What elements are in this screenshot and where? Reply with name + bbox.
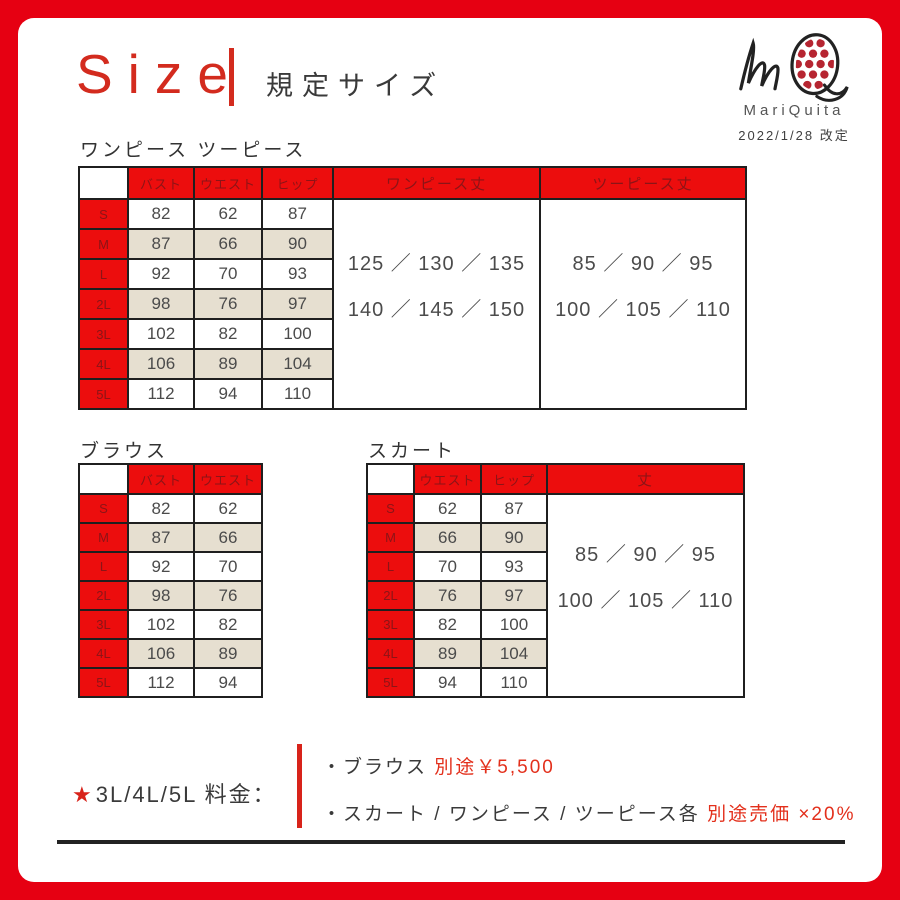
hip-cell: 100 xyxy=(262,319,333,349)
bust-cell: 102 xyxy=(128,319,194,349)
bust-cell: 112 xyxy=(128,379,194,409)
waist-cell: 66 xyxy=(414,523,481,552)
title-divider-bar xyxy=(229,48,234,106)
onepiece-size-table: バスト ウエスト ヒップ ワンピース丈 ツーピース丈 S 82 62 87 12… xyxy=(78,166,747,410)
col-header-waist: ウエスト xyxy=(194,167,262,199)
waist-cell: 76 xyxy=(194,581,262,610)
waist-cell: 66 xyxy=(194,229,262,259)
table-row: 4L 106 89 xyxy=(79,639,262,668)
waist-cell: 62 xyxy=(194,494,262,523)
bust-cell: 92 xyxy=(128,259,194,289)
pricing-item-skirt: ・スカート / ワンピース / ツーピース各 別途売価 ×20% xyxy=(322,799,855,826)
pricing-item-highlight: 別途売価 ×20% xyxy=(707,804,855,825)
section-label-onepiece: ワンピース ツーピース xyxy=(80,135,306,162)
bust-cell: 87 xyxy=(128,229,194,259)
onepiece-length-cell: 125 ／ 130 ／ 135 140 ／ 145 ／ 150 xyxy=(333,199,540,409)
section-label-skirt: スカート xyxy=(368,436,456,463)
pricing-label-text: 3L/4L/5L 料金： xyxy=(96,782,277,807)
pricing-divider-bar xyxy=(297,744,302,828)
col-header-skirt-length: 丈 xyxy=(547,464,744,494)
waist-cell: 94 xyxy=(414,668,481,697)
table-row: 2L 98 76 xyxy=(79,581,262,610)
blouse-size-table: バスト ウエスト S 82 62 M 87 66 L 92 70 2L 98 7… xyxy=(78,463,263,698)
waist-cell: 62 xyxy=(194,199,262,229)
size-cell: 3L xyxy=(367,610,414,639)
corner-cell xyxy=(79,464,128,494)
waist-cell: 82 xyxy=(414,610,481,639)
size-cell: 5L xyxy=(79,668,128,697)
hip-cell: 104 xyxy=(481,639,547,668)
col-header-hip: ヒップ xyxy=(481,464,547,494)
hip-cell: 110 xyxy=(481,668,547,697)
logo-letter-m xyxy=(741,43,778,89)
length-values: 85 ／ 90 ／ 95 xyxy=(541,247,745,276)
pricing-item-highlight: 別途￥5,500 xyxy=(434,757,555,778)
length-values: 125 ／ 130 ／ 135 xyxy=(334,247,539,276)
section-label-blouse: ブラウス xyxy=(80,436,168,463)
page-title-ja: 規定サイズ xyxy=(266,64,445,103)
size-cell: 3L xyxy=(79,319,128,349)
waist-cell: 82 xyxy=(194,319,262,349)
waist-cell: 94 xyxy=(194,379,262,409)
revision-date: 2022/1/28 改定 xyxy=(718,125,870,144)
hip-cell: 93 xyxy=(481,552,547,581)
bust-cell: 112 xyxy=(128,668,194,697)
table-row: M 87 66 xyxy=(79,523,262,552)
bottom-divider-line xyxy=(57,840,845,844)
table-row: S 82 62 87 125 ／ 130 ／ 135 140 ／ 145 ／ 1… xyxy=(79,199,746,229)
size-cell: 5L xyxy=(79,379,128,409)
size-cell: 3L xyxy=(79,610,128,639)
col-header-hip: ヒップ xyxy=(262,167,333,199)
size-cell: 2L xyxy=(367,581,414,610)
waist-cell: 89 xyxy=(194,639,262,668)
size-cell: M xyxy=(79,523,128,552)
size-cell: L xyxy=(79,259,128,289)
bust-cell: 98 xyxy=(128,581,194,610)
size-cell: S xyxy=(79,199,128,229)
col-header-waist: ウエスト xyxy=(414,464,481,494)
hip-cell: 90 xyxy=(481,523,547,552)
size-cell: S xyxy=(79,494,128,523)
waist-cell: 94 xyxy=(194,668,262,697)
table-row: L 92 70 xyxy=(79,552,262,581)
hip-cell: 97 xyxy=(262,289,333,319)
bust-cell: 106 xyxy=(128,349,194,379)
size-cell: L xyxy=(79,552,128,581)
corner-cell xyxy=(367,464,414,494)
col-header-bust: バスト xyxy=(128,167,194,199)
bust-cell: 98 xyxy=(128,289,194,319)
waist-cell: 66 xyxy=(194,523,262,552)
pricing-item-blouse: ・ブラウス 別途￥5,500 xyxy=(322,752,555,779)
star-icon: ★ xyxy=(72,782,94,807)
brand-name: MariQuita xyxy=(718,102,870,119)
length-values: 85 ／ 90 ／ 95 xyxy=(548,538,743,567)
twopiece-length-cell: 85 ／ 90 ／ 95 100 ／ 105 ／ 110 xyxy=(540,199,746,409)
pricing-item-text: ・スカート / ワンピース / ツーピース各 xyxy=(322,804,707,825)
size-cell: 4L xyxy=(367,639,414,668)
bust-cell: 102 xyxy=(128,610,194,639)
waist-cell: 70 xyxy=(194,259,262,289)
size-cell: 4L xyxy=(79,639,128,668)
bust-cell: 82 xyxy=(128,494,194,523)
bust-cell: 82 xyxy=(128,199,194,229)
col-header-bust: バスト xyxy=(128,464,194,494)
waist-cell: 89 xyxy=(194,349,262,379)
bust-cell: 106 xyxy=(128,639,194,668)
length-values: 100 ／ 105 ／ 110 xyxy=(541,293,745,322)
hip-cell: 87 xyxy=(262,199,333,229)
waist-cell: 89 xyxy=(414,639,481,668)
pricing-label: ★3L/4L/5L 料金： xyxy=(72,777,277,809)
size-cell: 2L xyxy=(79,289,128,319)
pricing-item-text: ・ブラウス xyxy=(322,757,434,778)
hip-cell: 100 xyxy=(481,610,547,639)
skirt-size-table: ウエスト ヒップ 丈 S 62 87 85 ／ 90 ／ 95 100 ／ 10… xyxy=(366,463,745,698)
length-values: 100 ／ 105 ／ 110 xyxy=(548,584,743,613)
size-cell: M xyxy=(79,229,128,259)
waist-cell: 70 xyxy=(414,552,481,581)
waist-cell: 62 xyxy=(414,494,481,523)
size-cell: 2L xyxy=(79,581,128,610)
col-header-twopiece-length: ツーピース丈 xyxy=(540,167,746,199)
table-row: 5L 112 94 xyxy=(79,668,262,697)
col-header-onepiece-length: ワンピース丈 xyxy=(333,167,540,199)
brand-block: MariQuita 2022/1/28 改定 xyxy=(718,28,870,144)
table-row: S 82 62 xyxy=(79,494,262,523)
skirt-length-cell: 85 ／ 90 ／ 95 100 ／ 105 ／ 110 xyxy=(547,494,744,697)
corner-cell xyxy=(79,167,128,199)
hip-cell: 97 xyxy=(481,581,547,610)
table-row: 3L 102 82 xyxy=(79,610,262,639)
size-cell: S xyxy=(367,494,414,523)
length-values: 140 ／ 145 ／ 150 xyxy=(334,293,539,322)
size-cell: 5L xyxy=(367,668,414,697)
hip-cell: 90 xyxy=(262,229,333,259)
page-title-en: Size xyxy=(76,42,243,106)
hip-cell: 104 xyxy=(262,349,333,379)
waist-cell: 70 xyxy=(194,552,262,581)
hip-cell: 110 xyxy=(262,379,333,409)
size-cell: 4L xyxy=(79,349,128,379)
bust-cell: 87 xyxy=(128,523,194,552)
size-cell: M xyxy=(367,523,414,552)
mariquita-logo-icon xyxy=(730,28,858,104)
col-header-waist: ウエスト xyxy=(194,464,262,494)
waist-cell: 82 xyxy=(194,610,262,639)
table-row: S 62 87 85 ／ 90 ／ 95 100 ／ 105 ／ 110 xyxy=(367,494,744,523)
hip-cell: 87 xyxy=(481,494,547,523)
bust-cell: 92 xyxy=(128,552,194,581)
hip-cell: 93 xyxy=(262,259,333,289)
waist-cell: 76 xyxy=(194,289,262,319)
waist-cell: 76 xyxy=(414,581,481,610)
size-cell: L xyxy=(367,552,414,581)
